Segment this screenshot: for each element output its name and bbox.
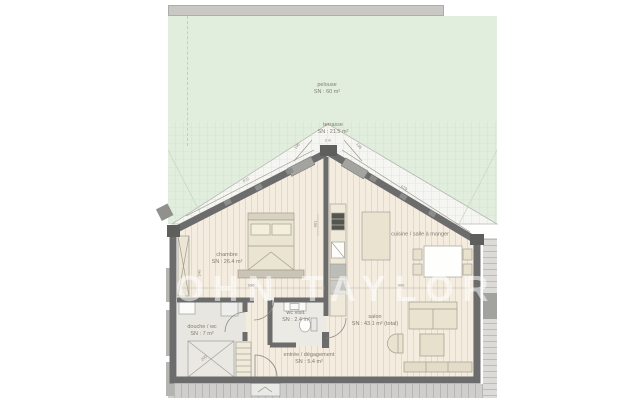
room-area: SN : 60 m² <box>314 88 340 95</box>
label-douche: douche / wc SN : 7 m² <box>187 323 216 337</box>
room-name: pelouse <box>314 81 340 88</box>
room-name: wc visit. <box>282 309 310 316</box>
dim-chain-right: 990 <box>398 283 405 288</box>
label-chambre: chambre SN : 26.4 m² <box>212 251 243 265</box>
dim-terrace-depth: 3 m <box>325 138 332 143</box>
label-entree: entrée / dégagement SN : 5.4 m² <box>284 351 335 365</box>
exterior-walkway <box>168 384 497 398</box>
label-terrasse: terrasse SN : 21.5 m² <box>318 121 349 135</box>
room-area: SN : 5.4 m² <box>284 358 335 365</box>
room-name: cuisine / salle à manger <box>391 230 449 237</box>
room-name: douche / wc <box>187 323 216 330</box>
floor-plan-canvas: JOHN TAYLOR pelouse SN : 60 m² terrasse … <box>0 0 620 400</box>
label-cuisine: cuisine / salle à manger <box>391 230 449 237</box>
room-area: SN : 43.1 m² (total) <box>352 320 398 327</box>
dim-chain-left: 990 <box>248 283 255 288</box>
label-salon: salon SN : 43.1 m² (total) <box>352 313 398 327</box>
room-name: chambre <box>212 251 243 258</box>
room-area: SN : 26.4 m² <box>212 258 243 265</box>
label-wc: wc visit. SN : 2.4 m² <box>282 309 310 323</box>
label-pelouse: pelouse SN : 60 m² <box>314 81 340 95</box>
neighbor-right-stairs <box>483 238 497 398</box>
room-area: SN : 21.5 m² <box>318 128 349 135</box>
plan-drawing <box>0 0 620 400</box>
room-area: SN : 7 m² <box>187 330 216 337</box>
entrance-doormat <box>251 383 280 396</box>
room-area: SN : 2.4 m² <box>282 316 310 323</box>
room-name: entrée / dégagement <box>284 351 335 358</box>
dim-kitchen-wall: 881 <box>313 221 318 228</box>
room-name: salon <box>352 313 398 320</box>
dim-wardrobe: 240 <box>197 270 202 277</box>
room-name: terrasse <box>318 121 349 128</box>
